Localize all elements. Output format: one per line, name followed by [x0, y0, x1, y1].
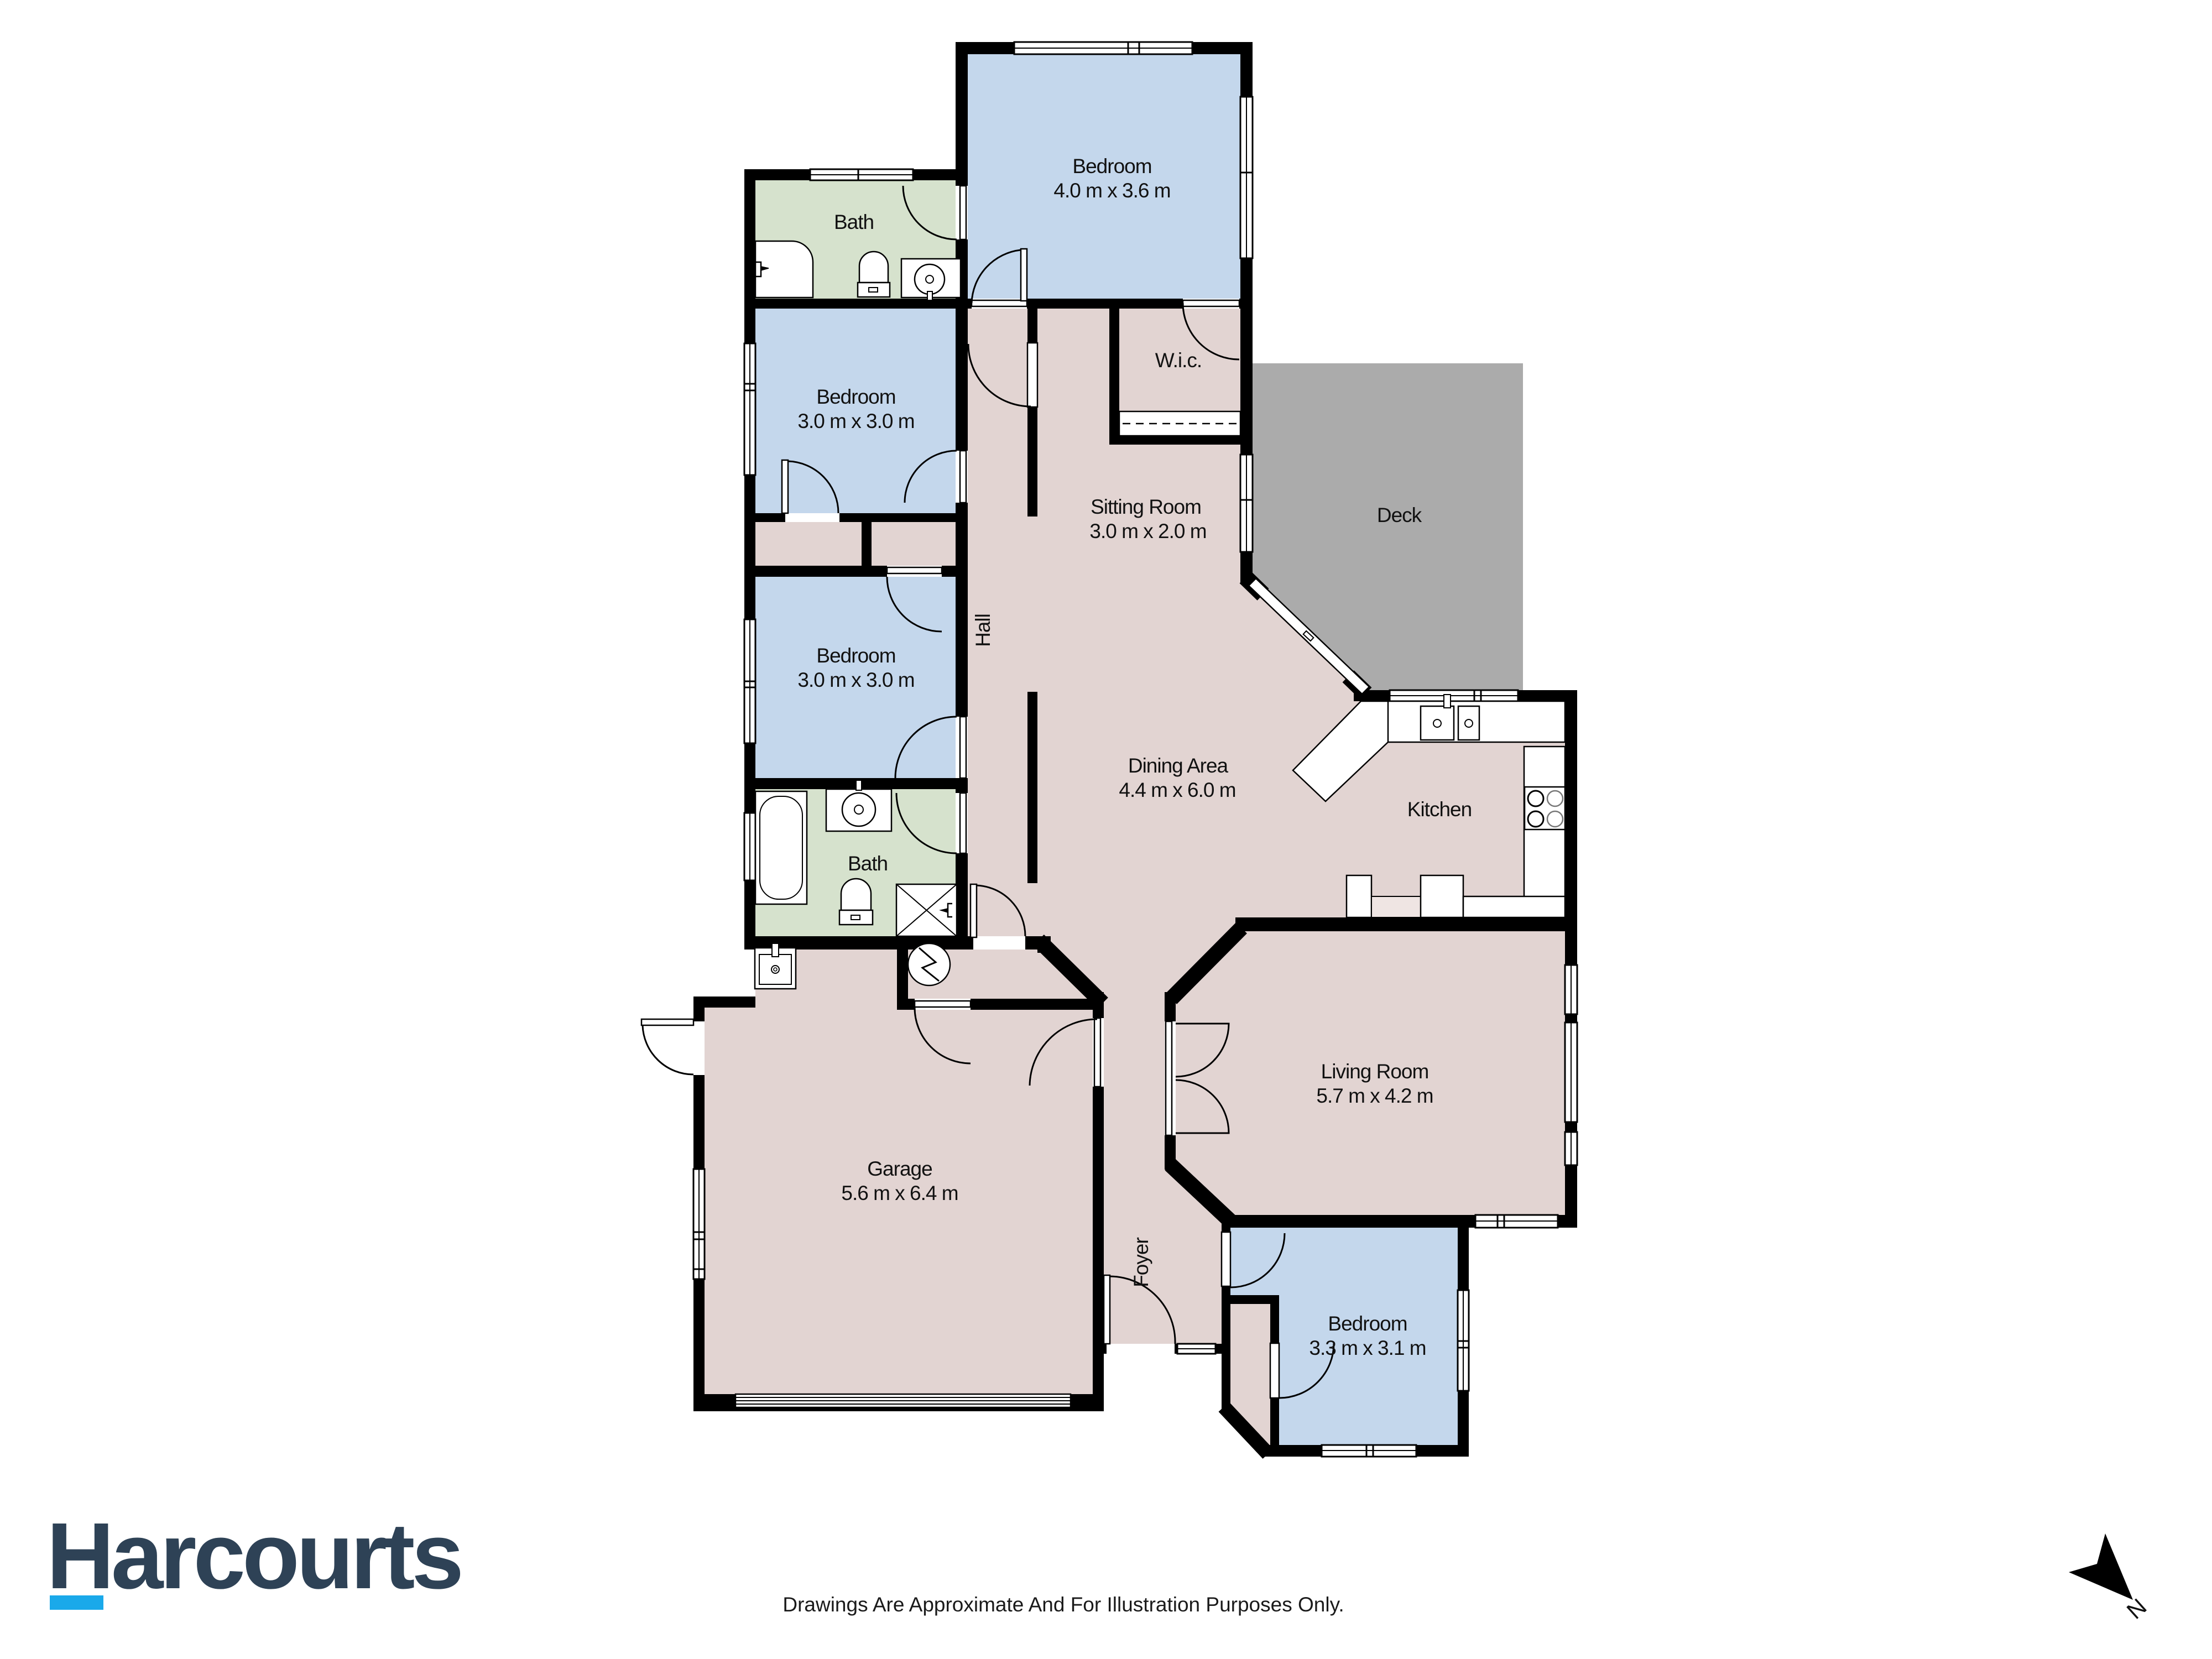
svg-text:Deck: Deck [1377, 504, 1422, 526]
svg-text:Foyer: Foyer [1130, 1238, 1152, 1287]
svg-text:Bedroom: Bedroom [1328, 1312, 1407, 1335]
svg-text:Hall: Hall [972, 614, 994, 647]
svg-text:Sitting Room: Sitting Room [1091, 495, 1201, 518]
svg-text:5.6 m x 6.4 m: 5.6 m x 6.4 m [841, 1182, 958, 1204]
svg-text:Bath: Bath [834, 211, 874, 233]
svg-text:W.i.c.: W.i.c. [1155, 349, 1202, 372]
svg-text:Drawings Are Approximate And F: Drawings Are Approximate And For Illustr… [782, 1593, 1344, 1616]
svg-text:Bedroom: Bedroom [816, 385, 895, 408]
svg-text:4.0 m x 3.6 m: 4.0 m x 3.6 m [1053, 179, 1170, 202]
svg-text:4.4 m x 6.0 m: 4.4 m x 6.0 m [1119, 779, 1235, 801]
svg-text:Bedroom: Bedroom [816, 644, 895, 667]
svg-text:Garage: Garage [867, 1157, 932, 1180]
svg-text:3.0 m x 3.0 m: 3.0 m x 3.0 m [797, 410, 914, 432]
svg-text:3.3 m x 3.1 m: 3.3 m x 3.1 m [1309, 1337, 1426, 1359]
svg-text:Dining Area: Dining Area [1128, 754, 1229, 777]
svg-text:3.0 m x 2.0 m: 3.0 m x 2.0 m [1089, 520, 1206, 542]
svg-text:5.7 m x 4.2 m: 5.7 m x 4.2 m [1316, 1084, 1433, 1107]
svg-text:Living Room: Living Room [1321, 1060, 1429, 1083]
svg-text:Bedroom: Bedroom [1072, 155, 1151, 178]
svg-text:Kitchen: Kitchen [1407, 798, 1472, 821]
svg-text:Harcourts: Harcourts [46, 1504, 461, 1609]
svg-text:Bath: Bath [848, 852, 888, 875]
svg-text:3.0 m x 3.0 m: 3.0 m x 3.0 m [797, 669, 914, 691]
